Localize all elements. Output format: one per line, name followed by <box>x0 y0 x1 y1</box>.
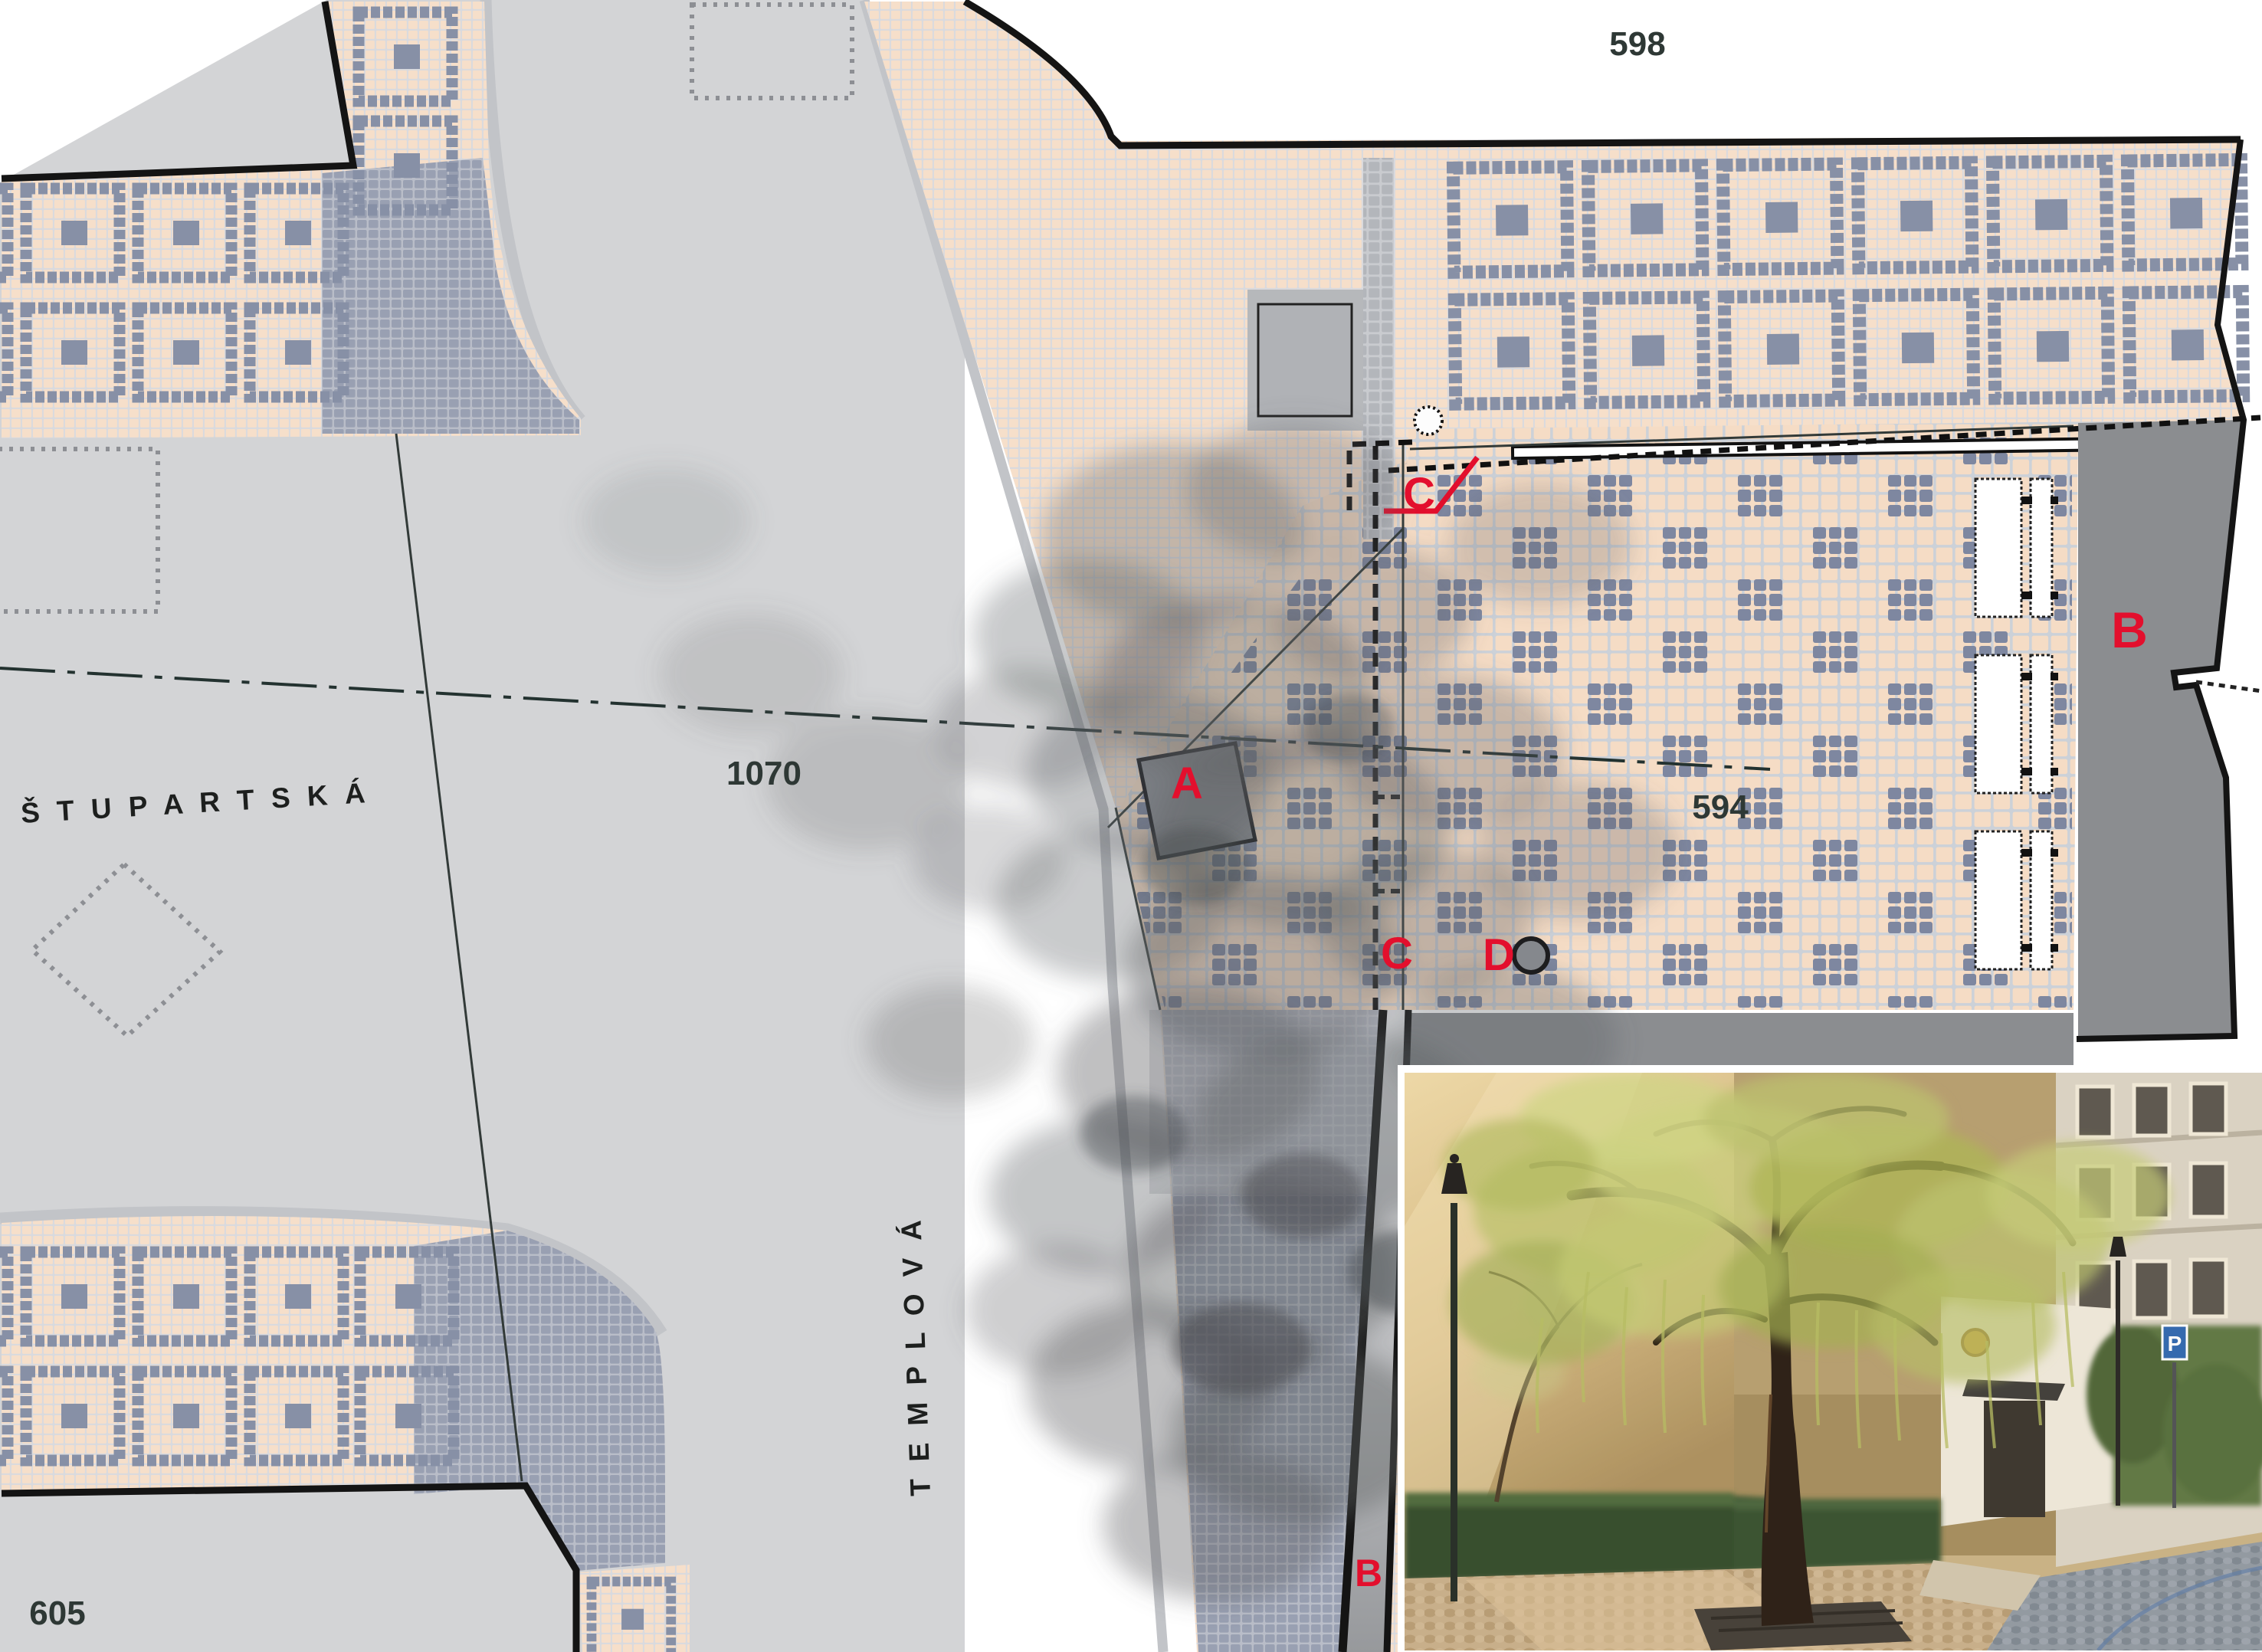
kiosk-structure <box>1247 290 1364 431</box>
tree-circle-d <box>1514 939 1548 972</box>
north-sidewalk-paving <box>1395 136 2244 429</box>
bench-pair-1 <box>1975 479 2058 617</box>
marker-d: D <box>1483 930 1515 980</box>
marker-c-bottom: C <box>1381 929 1413 978</box>
bench-pair-3 <box>1975 831 2058 969</box>
parcel-605: 605 <box>29 1595 85 1632</box>
parcel-594: 594 <box>1692 788 1749 826</box>
marker-c-top: C <box>1403 469 1435 519</box>
parcel-1070: 1070 <box>726 755 802 792</box>
parcel-598: 598 <box>1609 25 1665 63</box>
marker-b-bottom: B <box>1355 1552 1382 1595</box>
bench-pair-2 <box>1975 655 2058 793</box>
marker-b-building: B <box>2111 601 2148 658</box>
marker-a: A <box>1171 759 1203 808</box>
photo-inset: P <box>1405 1073 2262 1650</box>
tree-circle-proposed <box>1415 407 1442 434</box>
site-plan-page: 598 1070 594 605 Š T U P A R T S K Á T E… <box>0 0 2262 1652</box>
site-plan-drawing: 598 1070 594 605 Š T U P A R T S K Á T E… <box>0 0 2262 1652</box>
bench-groups <box>1975 479 2058 969</box>
